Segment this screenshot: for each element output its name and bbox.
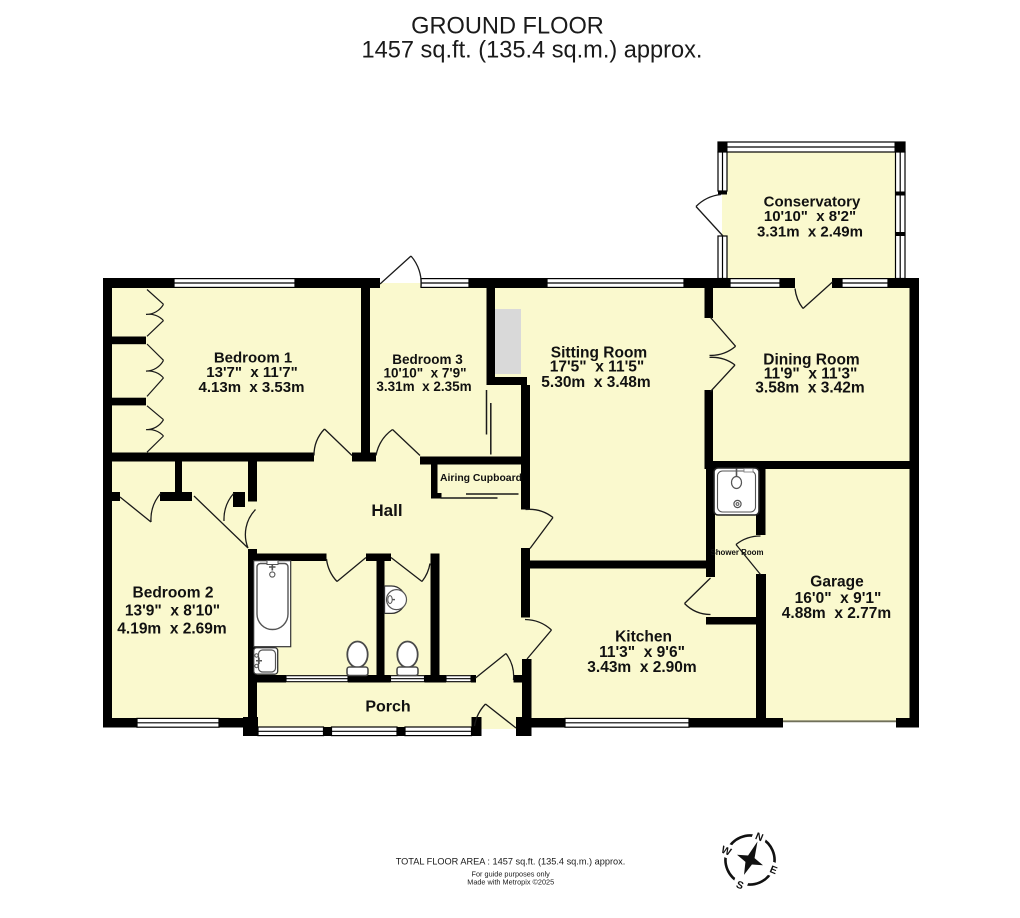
- svg-text:Bedroom 3: Bedroom 3: [392, 352, 463, 367]
- svg-text:3.58m x 3.42m: 3.58m x 3.42m: [755, 380, 864, 397]
- svg-text:3.43m x 2.90m: 3.43m x 2.90m: [587, 659, 696, 676]
- svg-text:3.31m x 2.35m: 3.31m x 2.35m: [376, 379, 471, 394]
- svg-text:Airing Cupboard: Airing Cupboard: [440, 473, 522, 484]
- svg-text:Bedroom 2: Bedroom 2: [133, 585, 214, 602]
- svg-text:Made with Metropix ©2025: Made with Metropix ©2025: [467, 877, 554, 886]
- svg-text:3.31m x 2.49m: 3.31m x 2.49m: [757, 224, 863, 241]
- svg-text:Garage: Garage: [810, 574, 864, 591]
- svg-text:1457 sq.ft. (135.4 sq.m.) appr: 1457 sq.ft. (135.4 sq.m.) approx.: [362, 38, 703, 64]
- svg-text:Porch: Porch: [365, 698, 410, 715]
- svg-text:Hall: Hall: [371, 501, 402, 520]
- svg-text:10'10" x 8'2": 10'10" x 8'2": [764, 208, 856, 225]
- svg-text:13'9" x 8'10": 13'9" x 8'10": [125, 603, 220, 620]
- svg-text:4.19m x 2.69m: 4.19m x 2.69m: [117, 621, 226, 638]
- svg-text:Shower Room: Shower Room: [710, 548, 763, 557]
- svg-text:Kitchen: Kitchen: [615, 629, 672, 646]
- svg-text:17'5" x 11'5": 17'5" x 11'5": [550, 359, 644, 376]
- svg-text:4.13m x 3.53m: 4.13m x 3.53m: [199, 379, 305, 396]
- svg-text:TOTAL FLOOR AREA : 1457 sq.ft.: TOTAL FLOOR AREA : 1457 sq.ft. (135.4 sq…: [396, 857, 626, 867]
- svg-text:GROUND FLOOR: GROUND FLOOR: [411, 14, 604, 40]
- svg-text:4.88m x 2.77m: 4.88m x 2.77m: [782, 605, 891, 622]
- svg-text:5.30m x 3.48m: 5.30m x 3.48m: [541, 374, 650, 391]
